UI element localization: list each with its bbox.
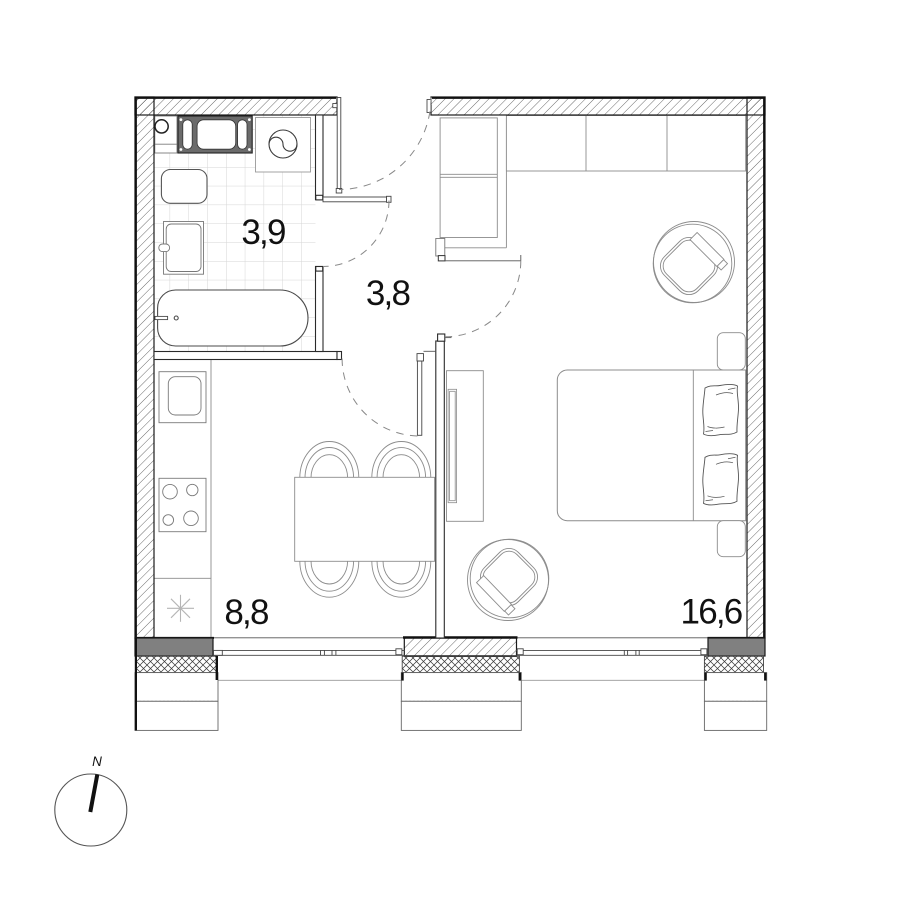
svg-text:3,9: 3,9	[241, 213, 285, 252]
svg-text:3,8: 3,8	[366, 274, 410, 313]
svg-text:8,8: 8,8	[224, 593, 268, 632]
svg-text:16,6: 16,6	[681, 593, 742, 632]
svg-text:N: N	[92, 754, 102, 769]
